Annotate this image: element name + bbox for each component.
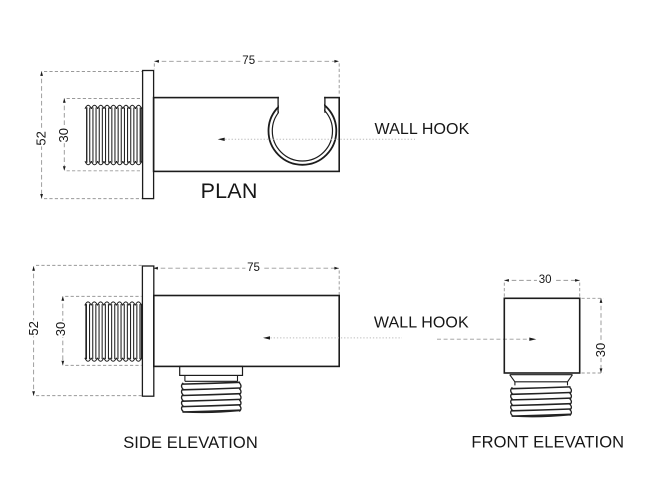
svg-text:SIDE ELEVATION: SIDE ELEVATION [123,434,258,452]
svg-text:PLAN: PLAN [201,179,258,203]
svg-text:WALL HOOK: WALL HOOK [375,121,470,138]
svg-text:75: 75 [247,262,260,274]
svg-text:52: 52 [33,131,48,145]
svg-text:30: 30 [56,128,71,142]
svg-text:30: 30 [593,343,608,357]
svg-text:75: 75 [242,55,255,67]
svg-text:30: 30 [53,322,68,336]
svg-text:30: 30 [539,274,552,286]
svg-text:WALL HOOK: WALL HOOK [374,314,469,331]
svg-text:FRONT ELEVATION: FRONT ELEVATION [471,434,624,452]
svg-text:52: 52 [26,321,41,335]
